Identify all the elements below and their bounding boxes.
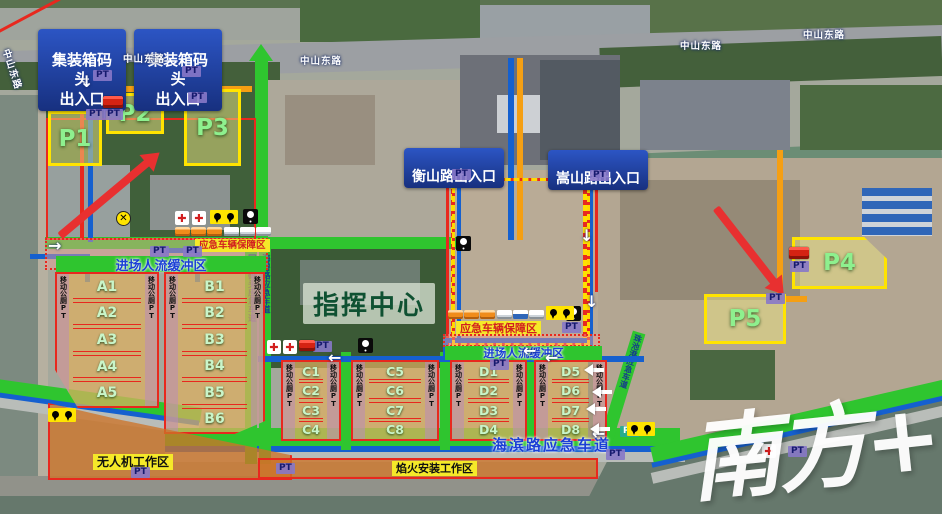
grid-zone-a3: A3	[69, 329, 145, 351]
p3-label: P3	[196, 115, 229, 141]
arrow-left-icon	[592, 386, 612, 398]
grid-zone-a1: A1	[69, 276, 145, 298]
pt-badge: PT	[131, 467, 150, 478]
bus-icon	[207, 227, 222, 236]
grid-zone-b3: B3	[178, 329, 251, 351]
grid-zone-c3: C3	[295, 403, 327, 418]
grid-section-b: 移动公厕PT移动公厕PTB1B2B3B4B5B6	[164, 272, 265, 434]
grid-zone-c6: C6	[365, 383, 425, 398]
satellite-patch	[540, 60, 620, 160]
x-marker-icon: ✕	[116, 211, 131, 226]
mobile-toilet-label: 移动公厕PT	[254, 276, 261, 432]
grid-zone-d6: D6	[548, 383, 593, 398]
grid-section-d-left: 移动公厕PT移动公厕PTD1D2D3D4	[450, 360, 527, 441]
green-up-arrowhead	[249, 44, 273, 61]
location-pin-icon	[546, 306, 574, 320]
pt-badge: PT	[93, 70, 112, 81]
mobile-toilet-label: 移动公厕PT	[539, 364, 546, 439]
p5-label: P5	[729, 306, 762, 332]
bus-icon	[464, 310, 479, 319]
grid-section-c-right: 移动公厕PT移动公厕PTC5C6C7C8	[351, 360, 439, 441]
green-strip	[341, 352, 351, 450]
fire-truck-icon	[789, 247, 809, 259]
pt-badge: PT	[104, 109, 123, 120]
grid-zone-a4: A4	[69, 356, 145, 378]
pt-badge: PT	[562, 322, 581, 333]
location-pin-icon	[48, 408, 76, 422]
grid-zone-d2: D2	[464, 383, 513, 398]
arrow-left-icon: ←	[545, 350, 558, 366]
medical-cross-icon: ✚	[283, 340, 297, 354]
fire-truck-icon	[103, 96, 123, 108]
satellite-patch	[800, 85, 942, 150]
grid-zone-a2: A2	[69, 303, 145, 325]
mobile-toilet-strip: 移动公厕PT	[425, 362, 437, 439]
bus-icon	[191, 227, 206, 236]
pt-badge: PT	[86, 109, 105, 120]
truck-icon	[256, 227, 271, 236]
arrow-left-icon: ←	[328, 350, 341, 366]
vehicle-support-text: 应急车辆保障区	[199, 240, 266, 251]
pt-badge: PT	[490, 359, 509, 370]
medical-cross-icon: ✚	[192, 211, 206, 225]
hengshan-red-line	[446, 172, 449, 354]
mobile-toilet-strip: 移动公厕PT	[536, 362, 548, 439]
satellite-patch	[285, 95, 375, 165]
pt-badge: PT	[150, 246, 169, 257]
mobile-toilet-label: 移动公厕PT	[148, 276, 155, 406]
pt-badge: PT	[590, 170, 609, 181]
blue-roof-buildings	[862, 188, 932, 236]
fireworks-area-chip: 焰火安装工作区	[392, 461, 477, 476]
truck-icon	[240, 227, 255, 236]
mobile-toilet-strip: 移动公厕PT	[57, 274, 69, 406]
pt-badge: PT	[790, 261, 809, 272]
mobile-toilet-strip: 移动公厕PT	[327, 362, 339, 439]
grid-zone-a5: A5	[69, 382, 145, 404]
fireworks-area-text: 焰火安装工作区	[396, 462, 473, 475]
pt-badge: PT	[276, 463, 295, 474]
mobile-toilet-strip: 移动公厕PT	[452, 362, 464, 439]
grid-section-c-left: 移动公厕PT移动公厕PTC1C2C3C4	[281, 360, 341, 441]
grid-zone-b1: B1	[178, 276, 251, 298]
light-icon	[358, 338, 373, 353]
ambulance-icon	[497, 310, 512, 319]
mobile-toilet-strip: 移动公厕PT	[251, 274, 263, 432]
bus-icon	[448, 310, 463, 319]
arrow-down-icon: ↓	[580, 228, 593, 244]
pt-badge: PT	[183, 246, 202, 257]
satellite-patch	[640, 80, 790, 150]
grid-zone-b6: B6	[178, 409, 251, 431]
satellite-patch	[300, 0, 480, 42]
arrow-left-icon: ←	[523, 343, 536, 359]
command-center-label: 指挥中心	[303, 283, 435, 324]
pt-badge: PT	[452, 169, 471, 180]
mobile-toilet-label: 移动公厕PT	[428, 364, 435, 439]
mobile-toilet-label: 移动公厕PT	[356, 364, 363, 439]
location-pin-icon	[627, 422, 655, 436]
p4-label: P4	[823, 250, 856, 276]
container-exit-label-2: 集装箱码头 出入口	[134, 29, 222, 111]
location-pin-icon	[210, 210, 238, 224]
van-icon	[529, 310, 544, 319]
mobile-toilet-strip: 移动公厕PT	[353, 362, 365, 439]
mobile-toilet-strip: 移动公厕PT	[166, 274, 178, 432]
road-label-zhongshan: 中山东路	[300, 53, 342, 67]
ambulance-icon	[224, 227, 239, 236]
mobile-toilet-label: 移动公厕PT	[330, 364, 337, 439]
medical-cross-icon: ✚	[267, 340, 281, 354]
mobile-toilet-strip: 移动公厕PT	[145, 274, 157, 406]
road-label-zhongshan: 中山东路	[123, 51, 165, 65]
pt-badge: PT	[766, 293, 785, 304]
truck-icon	[513, 310, 528, 319]
buffer-zone-text: 进场人流缓冲区	[115, 255, 206, 274]
grid-section-a: 移动公厕PT移动公厕PTA1A2A3A4A5	[55, 272, 159, 408]
command-center-text: 指挥中心	[313, 291, 425, 321]
mobile-toilet-label: 移动公厕PT	[60, 276, 67, 406]
bus-icon	[175, 227, 190, 236]
grid-zone-c5: C5	[365, 364, 425, 379]
p1-label: P1	[59, 126, 92, 152]
grid-zone-b5: B5	[178, 382, 251, 404]
mobile-toilet-label: 移动公厕PT	[286, 364, 293, 439]
arrow-down-icon: ↓	[80, 74, 93, 90]
grid-zone-c2: C2	[295, 383, 327, 398]
arrow-left-icon	[590, 423, 610, 435]
pt-badge: PT	[188, 92, 207, 103]
grid-zone-c1: C1	[295, 364, 327, 379]
mobile-toilet-strip: 移动公厕PT	[513, 362, 525, 439]
road-label-zhongshan: 中山东路	[803, 27, 845, 41]
fire-truck-icon	[299, 340, 315, 351]
arrow-left-icon	[586, 403, 606, 415]
vehicle-support-chip-left: 应急车辆保障区	[195, 239, 270, 252]
pt-badge: PT	[182, 66, 201, 77]
medical-cross-icon: ✚	[175, 211, 189, 225]
mobile-toilet-label: 移动公厕PT	[169, 276, 176, 432]
mobile-toilet-label: 移动公厕PT	[455, 364, 462, 439]
light-icon	[456, 236, 471, 251]
grid-zone-b4: B4	[178, 356, 251, 378]
grid-zone-c7: C7	[365, 403, 425, 418]
mobile-toilet-strip: 移动公厕PT	[283, 362, 295, 439]
event-site-map: 国集码头应急车道 海碧路应急车道 珠池港应急车道 P1 P2 P3 P4	[0, 0, 942, 514]
pt-badge: PT	[606, 449, 625, 460]
buffer-zone-label-left: 进场人流缓冲区	[56, 256, 266, 272]
arrow-right-icon: →	[48, 238, 61, 254]
arrow-down-icon: ↓	[585, 294, 598, 310]
grid-zone-c4: C4	[295, 422, 327, 437]
grid-zone-b2: B2	[178, 303, 251, 325]
bus-icon	[480, 310, 495, 319]
green-strip	[440, 352, 450, 450]
arrow-left-icon	[584, 364, 604, 376]
mobile-toilet-label: 移动公厕PT	[516, 364, 523, 439]
grid-zone-d3: D3	[464, 403, 513, 418]
nanfang-plus-watermark: 南方+	[682, 362, 942, 514]
road-label-zhongshan: 中山东路	[680, 38, 722, 52]
light-icon	[243, 209, 258, 224]
grid-zone-c8: C8	[365, 422, 425, 437]
